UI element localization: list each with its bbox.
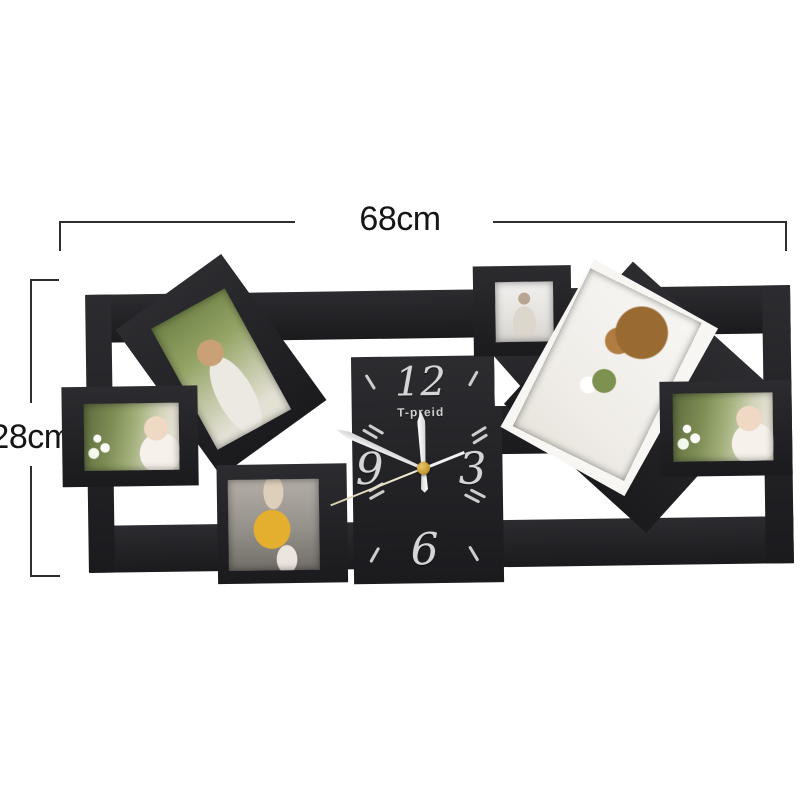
photo-young-girl [495, 281, 554, 342]
hour-tick-7 [369, 547, 380, 563]
photo-baby-left [84, 403, 180, 471]
clock-numeral-6: 6 [410, 528, 439, 572]
product-photo-scene: 68cm 28cm 12 T-preid 9 3 6 [0, 0, 800, 800]
hour-tick-11 [365, 374, 377, 390]
clock-numeral-12: 12 [395, 362, 446, 403]
hour-hand [417, 411, 428, 468]
hour-tick-2 [471, 426, 487, 438]
clock-face-panel: 12 T-preid 9 3 6 [351, 355, 504, 584]
photo-baby-right [673, 392, 774, 461]
hour-tick-10 [362, 428, 378, 439]
hour-tick-5 [468, 545, 479, 561]
hour-tick-1 [468, 370, 479, 386]
photo-frame-wall-clock: 12 T-preid 9 3 6 [0, 0, 800, 800]
clock-center-cap [417, 462, 430, 475]
photo-toddler-yellow-coat [228, 479, 320, 571]
